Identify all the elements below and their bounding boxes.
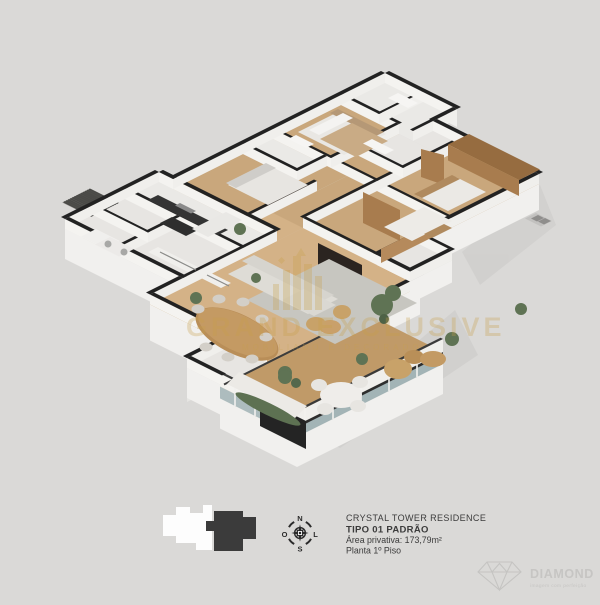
svg-text:GRAND EXCLUSIVE: GRAND EXCLUSIVE <box>186 312 506 342</box>
svg-text:N: N <box>297 514 302 523</box>
svg-text:S: S <box>297 545 302 554</box>
svg-text:imagem com perfeição: imagem com perfeição <box>530 583 587 589</box>
svg-text:CRYSTAL TOWER RESIDENCE: CRYSTAL TOWER RESIDENCE <box>346 513 486 523</box>
svg-text:Área privativa: 173,79m²: Área privativa: 173,79m² <box>346 535 442 545</box>
svg-text:Planta 1º Piso: Planta 1º Piso <box>346 546 401 556</box>
svg-text:L: L <box>313 530 318 539</box>
svg-text:DIAMOND: DIAMOND <box>530 567 594 581</box>
svg-text:TIPO 01 PADRÃO: TIPO 01 PADRÃO <box>346 525 429 536</box>
svg-text:MOBILIADO E DECORADO: MOBILIADO E DECORADO <box>242 343 422 352</box>
svg-text:O: O <box>282 530 288 539</box>
